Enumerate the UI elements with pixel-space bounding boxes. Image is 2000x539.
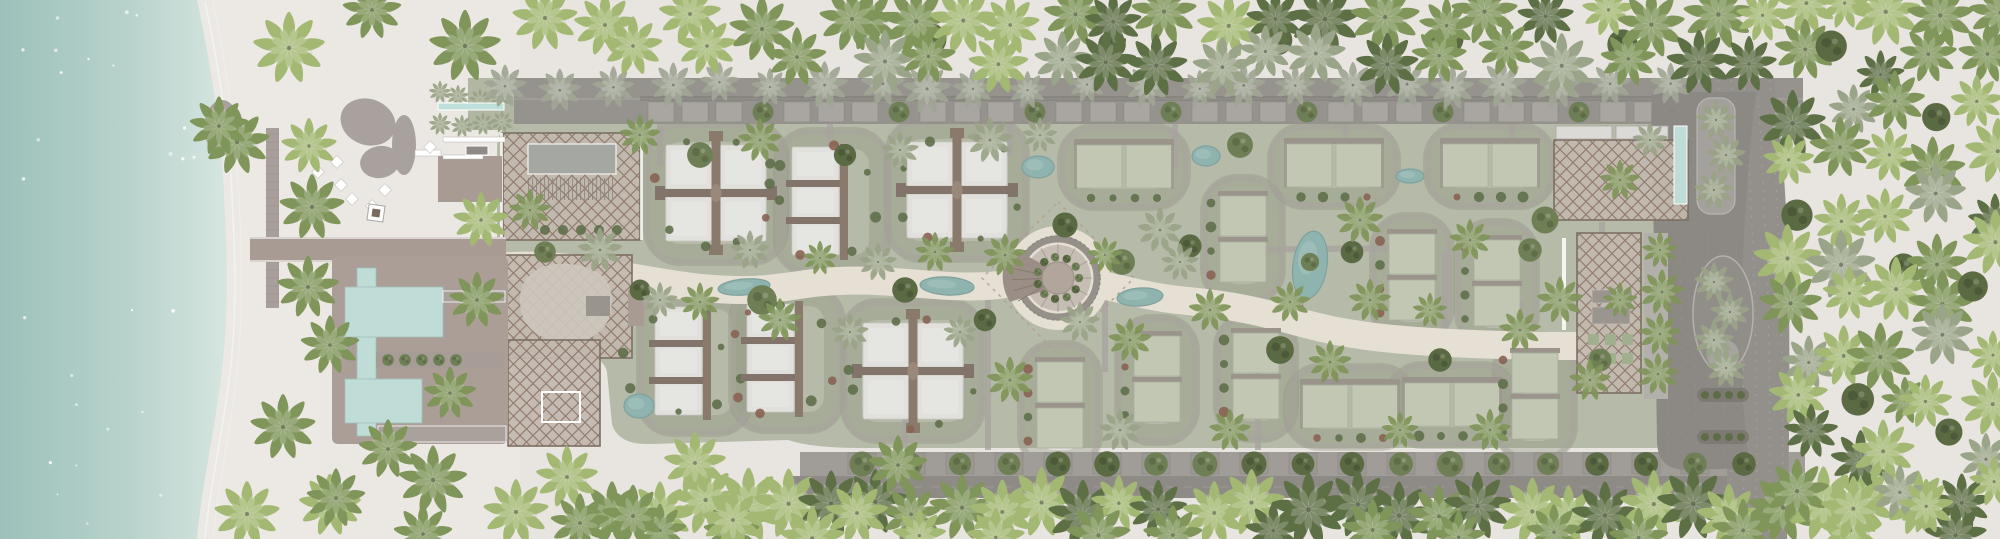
shrub-icon xyxy=(892,317,901,326)
tree-icon xyxy=(1034,268,1042,276)
bar-counter xyxy=(443,155,483,159)
parking-bay xyxy=(1600,102,1626,122)
shrub-icon xyxy=(1206,222,1217,233)
tree-icon xyxy=(1301,253,1319,271)
shrub-icon xyxy=(1518,192,1529,203)
tree-icon xyxy=(450,354,462,366)
shrub-icon xyxy=(1375,260,1385,270)
shrub-icon xyxy=(558,225,568,235)
shrub-icon xyxy=(1207,247,1215,255)
tree-icon xyxy=(1051,253,1059,261)
tree-icon xyxy=(1192,451,1217,476)
shrub-icon xyxy=(925,137,935,147)
tree-icon xyxy=(534,241,555,262)
shrub-icon xyxy=(1713,391,1721,399)
tree-icon xyxy=(416,354,428,366)
tree-icon xyxy=(1144,452,1168,476)
shrub-icon xyxy=(847,247,856,256)
tree-icon xyxy=(1297,102,1318,123)
shrub-icon xyxy=(1013,203,1020,210)
shrub-icon xyxy=(1207,199,1216,208)
lounge-deck xyxy=(392,115,416,175)
tree-icon xyxy=(1045,451,1070,476)
shrub-icon xyxy=(755,409,765,419)
shrub-icon xyxy=(806,395,817,406)
shrub-icon xyxy=(970,388,976,394)
tree-icon xyxy=(892,277,918,303)
tree-icon xyxy=(1227,132,1253,158)
shrub-icon xyxy=(1725,391,1733,399)
shrub-icon xyxy=(731,330,740,339)
roof-canopy xyxy=(1556,126,1612,139)
tree-icon xyxy=(1732,452,1756,476)
shrub-icon xyxy=(1296,192,1305,201)
shrub-icon xyxy=(864,169,871,176)
parking-bay xyxy=(852,102,878,122)
tree-icon xyxy=(1340,452,1364,476)
tree-icon xyxy=(753,102,774,123)
tree-icon xyxy=(1072,262,1080,270)
tree-icon xyxy=(1292,453,1315,476)
shrub-icon xyxy=(870,212,881,223)
shrub-icon xyxy=(1499,356,1508,365)
shrub-icon xyxy=(1220,360,1228,368)
tree-icon xyxy=(1341,241,1364,264)
tree-icon xyxy=(1488,453,1511,476)
pier xyxy=(266,128,279,308)
shrub-icon xyxy=(817,319,827,329)
pond xyxy=(1396,169,1424,183)
shrub-icon xyxy=(745,309,751,315)
tree-icon xyxy=(1958,271,1988,301)
shrub-icon xyxy=(1713,433,1721,441)
shrub-icon xyxy=(625,383,635,393)
ocean xyxy=(0,0,242,539)
tree-icon xyxy=(1437,451,1463,477)
shrub-icon xyxy=(649,315,658,324)
shrub-icon xyxy=(1024,413,1033,422)
parking-bay xyxy=(988,102,1014,122)
tree-icon xyxy=(382,354,394,366)
tree-icon xyxy=(1433,102,1454,123)
parking-bay xyxy=(1464,102,1490,122)
parking-bay xyxy=(1056,102,1082,122)
shrub-icon xyxy=(1131,194,1140,203)
shrub-icon xyxy=(1453,193,1460,200)
tree-icon xyxy=(1072,285,1080,293)
shrub-icon xyxy=(1219,335,1230,346)
tree-icon xyxy=(1063,255,1071,263)
shrub-icon xyxy=(922,315,930,323)
shrub-icon xyxy=(650,173,660,183)
shrub-icon xyxy=(1356,433,1366,443)
shrub-icon xyxy=(1498,379,1508,389)
shrub-icon xyxy=(1375,236,1385,246)
shrub-icon xyxy=(1474,192,1484,202)
tree-icon xyxy=(1052,212,1077,237)
shrub-icon xyxy=(898,212,908,222)
shrub-icon xyxy=(1496,192,1506,202)
shrub-icon xyxy=(1109,194,1116,201)
shrub-icon xyxy=(848,384,858,394)
tree-icon xyxy=(1922,103,1950,131)
tree-icon xyxy=(849,451,874,476)
clubhouse-building xyxy=(500,133,643,240)
shrub-icon xyxy=(1340,192,1349,201)
tree-icon xyxy=(1518,238,1541,261)
shrub-icon xyxy=(1087,194,1095,202)
shrub-icon xyxy=(762,214,770,222)
parking-bay xyxy=(648,102,674,122)
tree-icon xyxy=(1040,290,1048,298)
shrub-icon xyxy=(1737,391,1745,399)
parking-bay xyxy=(1226,102,1252,122)
shrub-icon xyxy=(775,196,784,205)
shrub-icon xyxy=(1335,434,1343,442)
shrub-icon xyxy=(1023,436,1032,445)
parking-bay xyxy=(784,102,810,122)
tree-icon xyxy=(1034,280,1042,288)
shrub-icon xyxy=(1437,432,1445,440)
tree-icon xyxy=(1537,453,1559,475)
tree-icon xyxy=(998,453,1021,476)
tree-icon xyxy=(1051,295,1059,303)
tree-icon xyxy=(1389,452,1413,476)
parking-bay xyxy=(1532,102,1558,122)
shrub-icon xyxy=(712,399,722,409)
shrub-icon xyxy=(1363,193,1370,200)
shrub-icon xyxy=(1414,431,1425,442)
parking-bay xyxy=(1362,102,1388,122)
main-pool-lower xyxy=(345,379,422,423)
bar-counter xyxy=(443,137,505,142)
tree-icon xyxy=(889,102,910,123)
tree-icon xyxy=(834,144,856,166)
shrub-icon xyxy=(683,138,690,145)
shrub-icon xyxy=(1701,433,1709,441)
tree-icon xyxy=(1266,336,1294,364)
tree-icon xyxy=(1075,274,1083,282)
tree-icon xyxy=(1428,348,1451,371)
pond xyxy=(1022,156,1054,178)
tree-icon xyxy=(399,354,411,366)
shrub-icon xyxy=(1498,403,1507,412)
tree-icon xyxy=(1585,452,1609,476)
shrub-icon xyxy=(1701,391,1709,399)
shrub-icon xyxy=(1458,431,1468,441)
shrub-icon xyxy=(540,225,550,235)
shrub-icon xyxy=(733,393,743,403)
tree-icon xyxy=(974,309,997,332)
tree-icon xyxy=(949,453,971,475)
tree-icon xyxy=(1841,383,1874,416)
tree-icon xyxy=(1569,102,1590,123)
shrub-icon xyxy=(1121,363,1128,370)
parking-bay xyxy=(1090,102,1116,122)
shrub-icon xyxy=(1460,290,1469,299)
lap-pool xyxy=(438,103,504,110)
shrub-icon xyxy=(935,420,943,428)
parking-bay xyxy=(1260,102,1286,122)
parking-bay xyxy=(716,102,742,122)
tree-icon xyxy=(1935,419,1962,446)
shrub-icon xyxy=(774,160,785,171)
parking-bay xyxy=(1124,102,1150,122)
shrub-icon xyxy=(665,226,673,234)
shrub-icon xyxy=(1313,434,1321,442)
shrub-icon xyxy=(764,179,774,189)
parking-bay xyxy=(1328,102,1354,122)
tree-icon xyxy=(687,142,713,168)
shrub-icon xyxy=(907,425,915,433)
tree-icon xyxy=(1063,293,1071,301)
tree-icon xyxy=(1094,451,1120,477)
tree-icon xyxy=(1025,102,1046,123)
pond xyxy=(624,394,654,418)
shrub-icon xyxy=(828,376,837,385)
shrub-icon xyxy=(675,408,681,414)
shrub-icon xyxy=(576,225,586,235)
shrub-icon xyxy=(718,344,725,351)
shrub-icon xyxy=(1153,194,1161,202)
shrub-icon xyxy=(978,236,984,242)
tree-icon xyxy=(1040,258,1048,266)
resort-masterplan-site-plan xyxy=(0,0,2000,539)
shrub-icon xyxy=(1121,387,1130,396)
pond xyxy=(1192,146,1220,166)
main-pool-upper xyxy=(345,287,443,337)
tree-icon xyxy=(1816,31,1847,62)
shrub-icon xyxy=(701,242,711,252)
tree-icon xyxy=(1532,207,1559,234)
shrub-icon xyxy=(844,365,854,375)
tree-icon xyxy=(1161,102,1182,123)
shrub-icon xyxy=(733,139,740,146)
shrub-icon xyxy=(1461,315,1468,322)
shrub-icon xyxy=(1219,383,1229,393)
tree-icon xyxy=(433,354,445,366)
parking-bay xyxy=(682,102,708,122)
shrub-icon xyxy=(1318,192,1328,202)
shrub-icon xyxy=(1461,267,1469,275)
site-plan-canvas xyxy=(0,0,2000,539)
shrub-icon xyxy=(618,348,628,358)
shrub-icon xyxy=(1206,270,1215,279)
spa-annex-building xyxy=(508,340,600,446)
shrub-icon xyxy=(1725,433,1733,441)
shrub-icon xyxy=(1737,433,1745,441)
